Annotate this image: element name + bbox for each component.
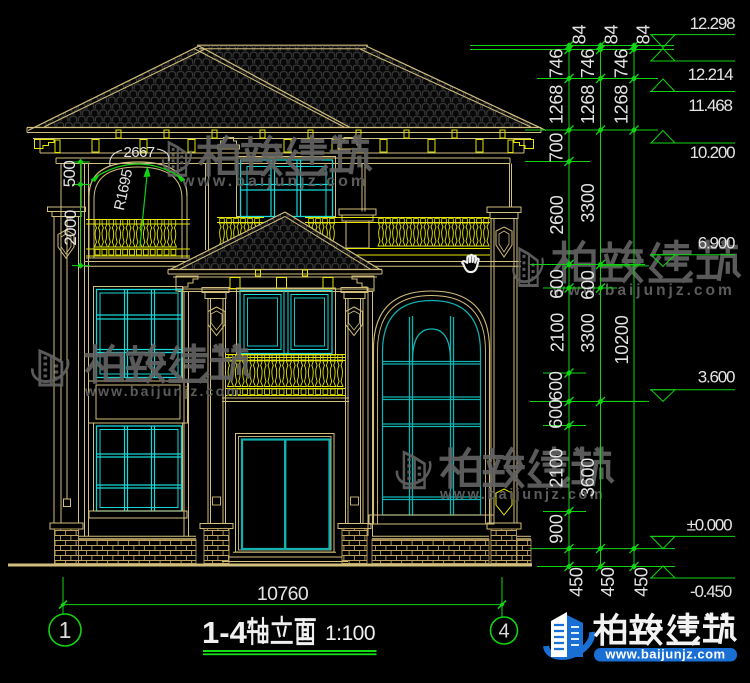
svg-text:2100: 2100: [548, 313, 568, 352]
svg-text:450: 450: [632, 567, 652, 597]
svg-text:600: 600: [546, 399, 566, 429]
svg-text:600: 600: [578, 270, 598, 300]
svg-text:3300: 3300: [578, 183, 598, 222]
svg-text:www.baijunjz.com: www.baijunjz.com: [84, 383, 241, 399]
svg-text:www.baijunjz.com: www.baijunjz.com: [181, 173, 368, 190]
svg-text:2667: 2667: [124, 144, 155, 161]
svg-text:6.900: 6.900: [698, 234, 735, 253]
svg-text:11.468: 11.468: [688, 96, 732, 115]
svg-text:500: 500: [60, 161, 79, 188]
svg-text:www.baijunjz.com: www.baijunjz.com: [604, 647, 725, 662]
svg-text:600: 600: [547, 269, 567, 299]
svg-text:10200: 10200: [612, 315, 632, 364]
svg-text:746: 746: [547, 49, 567, 79]
svg-text:84: 84: [602, 25, 622, 45]
svg-text:2000: 2000: [61, 210, 80, 246]
svg-text:600: 600: [546, 371, 566, 401]
svg-text:±0.000: ±0.000: [687, 516, 732, 535]
svg-text:12.214: 12.214: [688, 65, 734, 84]
svg-text:1268: 1268: [578, 85, 598, 124]
svg-text:1:100: 1:100: [325, 622, 375, 645]
svg-text:450: 450: [598, 567, 618, 597]
svg-text:10.200: 10.200: [690, 143, 736, 162]
svg-text:2100: 2100: [547, 448, 567, 487]
svg-text:10760: 10760: [257, 583, 309, 605]
svg-text:12.298: 12.298: [690, 14, 736, 33]
svg-text:1268: 1268: [612, 85, 632, 124]
svg-text:1268: 1268: [547, 85, 567, 124]
svg-text:2600: 2600: [547, 195, 567, 234]
svg-text:746: 746: [578, 49, 598, 79]
svg-text:1: 1: [59, 617, 72, 643]
svg-text:700: 700: [547, 133, 567, 163]
svg-text:1-4: 1-4: [202, 615, 248, 650]
svg-text:3600: 3600: [578, 458, 598, 497]
svg-text:746: 746: [612, 49, 632, 79]
svg-text:3300: 3300: [578, 313, 598, 352]
svg-text:450: 450: [567, 567, 587, 597]
svg-text:4: 4: [498, 621, 509, 643]
svg-text:3.600: 3.600: [698, 368, 735, 387]
svg-text:-0.450: -0.450: [690, 582, 732, 601]
svg-text:84: 84: [570, 25, 590, 45]
svg-text:900: 900: [547, 514, 567, 544]
